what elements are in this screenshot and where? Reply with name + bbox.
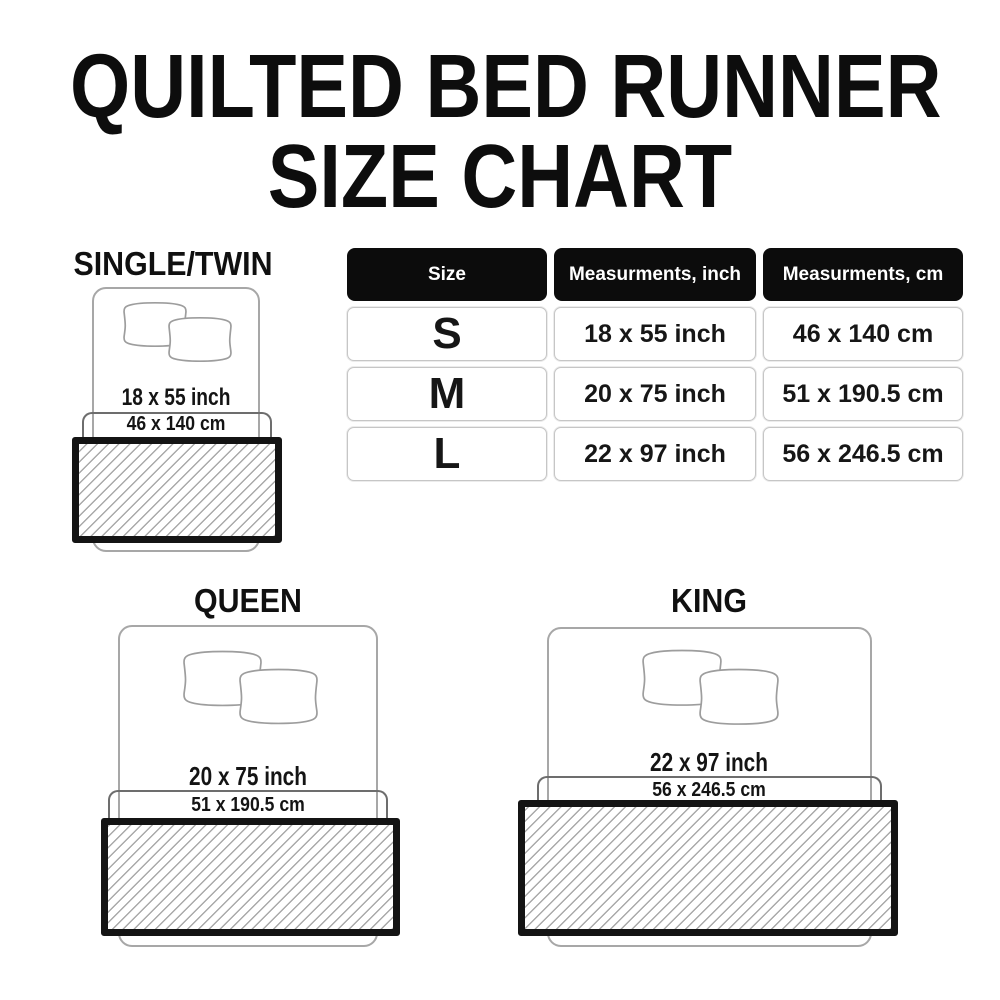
runner-swatch-single <box>72 437 282 543</box>
pillows-illustration <box>120 627 380 777</box>
bed-runner-size-chart: QUILTED BED RUNNER SIZE CHART Size Measu… <box>0 0 1000 1000</box>
bed-size-label-queen: QUEEN <box>110 584 386 618</box>
table-cell-cm-s: 46 x 140 cm <box>763 307 963 361</box>
table-header-cm: Measurments, cm <box>763 248 963 301</box>
dimension-inch-queen: 20 x 75 inch <box>128 763 368 790</box>
table-cell-inch-m: 20 x 75 inch <box>554 367 756 421</box>
size-table: Size Measurments, inch Measurments, cm S… <box>347 248 963 481</box>
table-header-size: Size <box>347 248 547 301</box>
pillow-icon <box>700 670 778 725</box>
table-cell-inch-l: 22 x 97 inch <box>554 427 756 481</box>
dimension-inch-king: 22 x 97 inch <box>589 749 829 776</box>
dimension-cm-single: 46 x 140 cm <box>44 414 308 435</box>
bed-size-label-king: KING <box>571 584 847 618</box>
table-cell-size-l: L <box>347 427 547 481</box>
table-cell-cm-l: 56 x 246.5 cm <box>763 427 963 481</box>
pillow-icon <box>169 318 231 361</box>
table-cell-inch-s: 18 x 55 inch <box>554 307 756 361</box>
runner-swatch-queen <box>101 818 400 936</box>
pillow-icon <box>240 669 317 723</box>
dimension-inch-single: 18 x 55 inch <box>56 385 296 411</box>
page-title-line1: QUILTED BED RUNNER <box>70 42 930 132</box>
dimension-cm-queen: 51 x 190.5 cm <box>116 795 380 816</box>
table-header-inch: Measurments, inch <box>554 248 756 301</box>
table-cell-cm-m: 51 x 190.5 cm <box>763 367 963 421</box>
bed-size-label-single-twin: SINGLE/TWIN <box>35 247 311 281</box>
table-cell-size-m: M <box>347 367 547 421</box>
pillows-illustration <box>94 289 262 389</box>
table-cell-size-s: S <box>347 307 547 361</box>
dimension-cm-king: 56 x 246.5 cm <box>577 780 841 801</box>
page-title-line2: SIZE CHART <box>70 132 930 222</box>
runner-swatch-king <box>518 800 898 936</box>
